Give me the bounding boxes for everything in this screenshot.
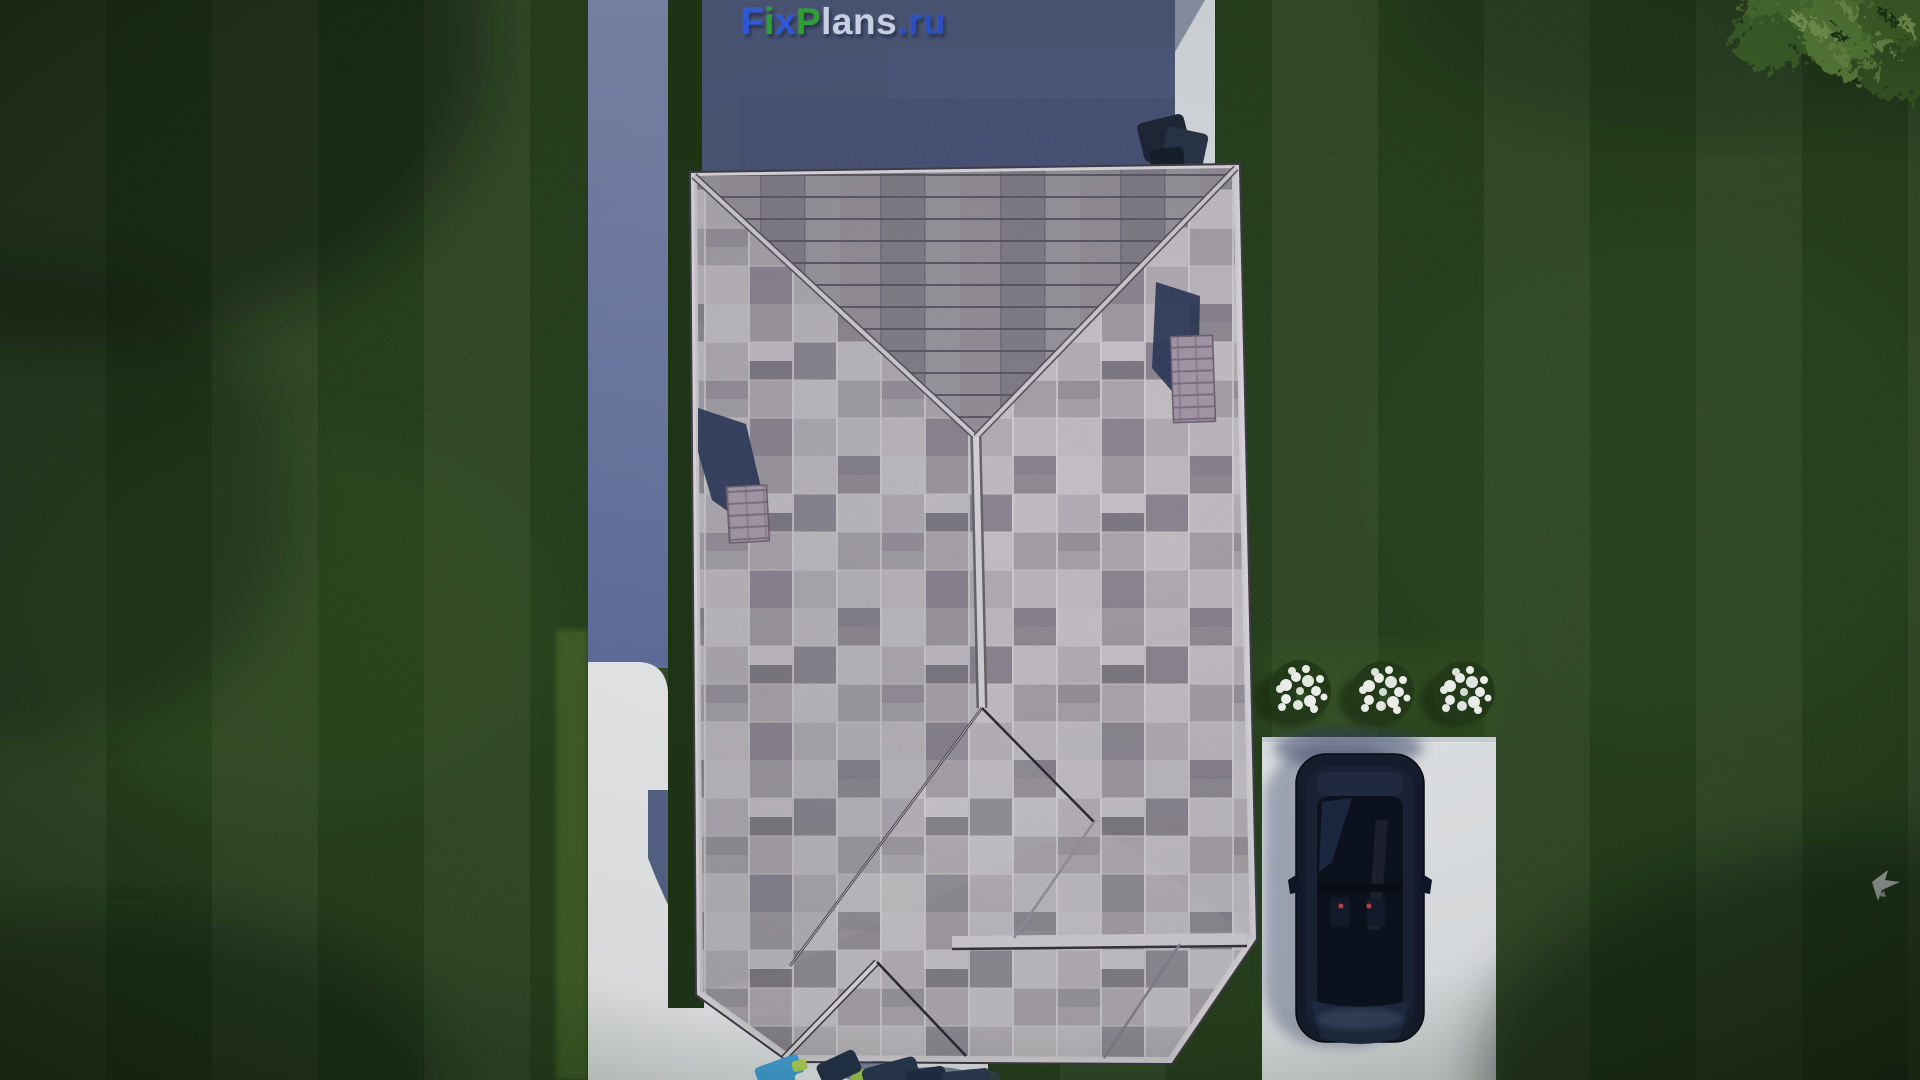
fixplans-watermark: FixPlans.ru [741,0,946,44]
watermark-letters: lans [821,0,897,44]
aerial-scene [0,0,1920,1080]
watermark-letter: i [764,0,775,44]
watermark-letter: F [741,0,764,44]
watermark-letter: P [796,0,821,44]
watermark-domain: .ru [897,0,946,44]
site-plan-render: FixPlans.ru [0,0,1920,1080]
watermark-letter: x [775,0,796,44]
